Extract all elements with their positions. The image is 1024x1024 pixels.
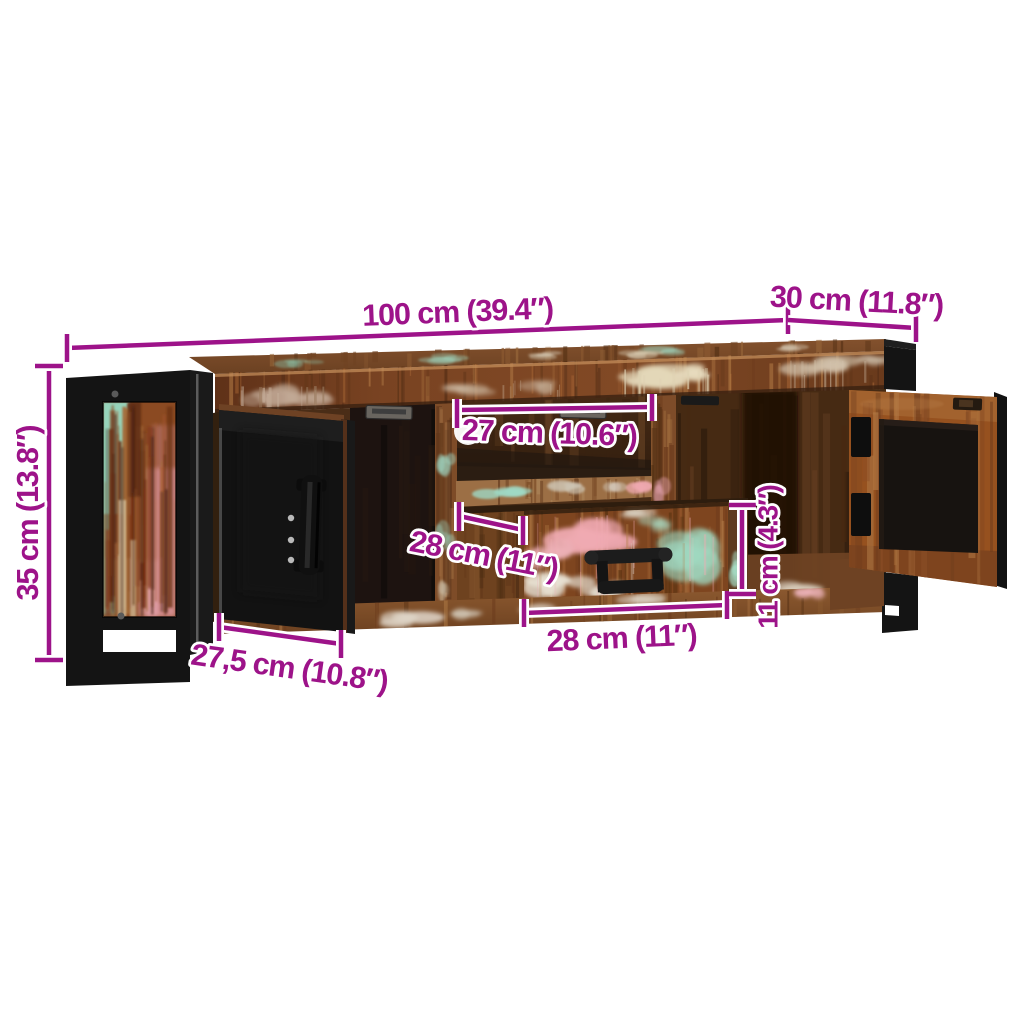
svg-text:11 cm (4.3″): 11 cm (4.3″) bbox=[752, 485, 783, 628]
svg-text:28 cm (11″): 28 cm (11″) bbox=[546, 618, 697, 659]
svg-text:35 cm (13.8″): 35 cm (13.8″) bbox=[11, 426, 45, 601]
svg-text:27 cm (10.6″): 27 cm (10.6″) bbox=[461, 413, 637, 453]
